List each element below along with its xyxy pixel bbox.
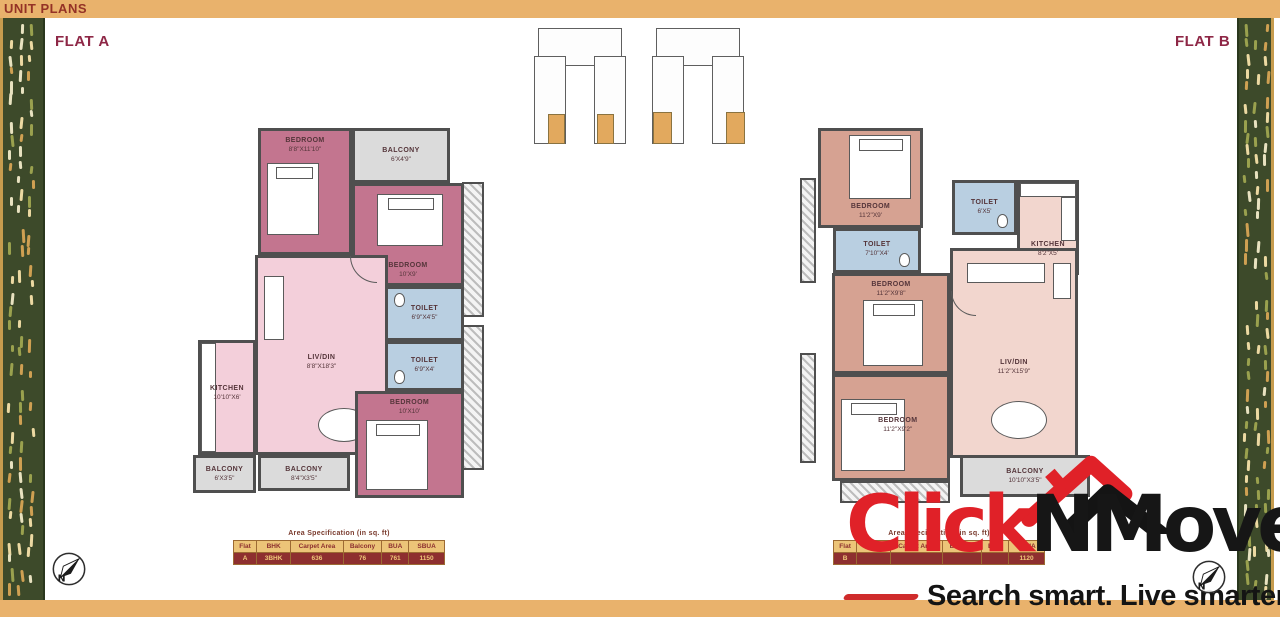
room-size: 6'9"X4'	[388, 366, 461, 374]
col-header: Balcony	[343, 541, 382, 553]
col-header: SBUA	[409, 541, 445, 553]
room-size: 6'X3'5"	[196, 475, 253, 483]
room-size: 7'10"X4'	[836, 250, 918, 258]
side-balcony-hatch	[800, 353, 816, 463]
unit-plans-page: UNIT PLANS FLAT A FLAT B BEDROOM 8'8"X11…	[0, 0, 1280, 617]
room-name: TOILET	[388, 357, 461, 366]
sofa-icon	[967, 263, 1045, 283]
room-balcony-1: BALCONY 6'X4'9"	[352, 128, 450, 183]
room-name: KITCHEN	[1020, 241, 1076, 250]
room-size: 10'X10'	[358, 408, 461, 416]
north-compass-icon: N	[1190, 558, 1228, 596]
col-header: BHK	[257, 541, 291, 553]
room-name: LIV/DIN	[258, 354, 385, 363]
flat-a-area-table: Area Specification (in sq. ft) Flat BHK …	[233, 530, 445, 565]
flat-a-floor-plan: BEDROOM 8'8"X11'10" BALCONY 6'X4'9" BEDR…	[190, 120, 490, 500]
side-balcony-hatch	[800, 178, 816, 283]
bed-icon	[377, 194, 443, 246]
cell-sbua: 1150	[409, 553, 445, 565]
room-name: BEDROOM	[355, 262, 461, 271]
logo-nmove: NMove	[1030, 480, 1280, 570]
highlighted-unit	[726, 112, 745, 144]
bed-icon	[863, 300, 923, 366]
sofa-icon	[264, 276, 284, 340]
dining-table-icon	[991, 401, 1047, 439]
room-size: 6'9"X4'5"	[388, 314, 461, 322]
room-toilet-2: TOILET 7'10"X4'	[833, 228, 921, 273]
room-toilet-1: TOILET 6'9"X4'5"	[385, 286, 464, 341]
room-bedroom-3: BEDROOM 10'X10'	[355, 391, 464, 498]
logo-wordmark: ClickNMove	[846, 486, 1280, 564]
kitchen-counter-icon	[1061, 197, 1076, 241]
room-toilet-2: TOILET 6'9"X4'	[385, 341, 464, 391]
room-size: 11'2"X9'2"	[853, 426, 943, 434]
highlighted-unit	[653, 112, 672, 144]
room-name: BEDROOM	[261, 137, 349, 146]
room-name: BEDROOM	[358, 399, 461, 408]
page-title: UNIT PLANS	[0, 0, 1280, 18]
room-name: LIV/DIN	[953, 359, 1075, 368]
room-size: 10'10"X6'	[201, 394, 253, 402]
room-name: BALCONY	[196, 466, 253, 475]
highlighted-unit	[597, 114, 614, 144]
room-size: 6'X4'9"	[355, 156, 447, 164]
key-plan-flat-b	[652, 28, 744, 146]
room-name: BEDROOM	[821, 203, 920, 212]
room-kitchen: KITCHEN 10'10"X6'	[198, 340, 256, 455]
bed-icon	[849, 135, 911, 199]
room-name: BEDROOM	[835, 281, 947, 290]
cell-bua: 761	[382, 553, 409, 565]
logo-click: Click	[846, 480, 1030, 570]
col-header: BUA	[382, 541, 409, 553]
cell-balcony: 76	[343, 553, 382, 565]
north-compass-icon: N	[50, 550, 88, 588]
cell-flat: A	[234, 553, 257, 565]
col-header: Flat	[234, 541, 257, 553]
room-name: TOILET	[955, 199, 1014, 208]
key-plan-flat-a	[534, 28, 626, 146]
room-living-dining: LIV/DIN 11'2"X15'9"	[950, 248, 1078, 458]
svg-text:N: N	[58, 573, 66, 584]
room-toilet-1: TOILET 6'X5'	[952, 180, 1017, 235]
room-size: 8'4"X3'5"	[261, 475, 347, 483]
room-size: 8'8"X18'3"	[258, 363, 385, 371]
flat-a-label: FLAT A	[55, 33, 110, 50]
room-name: BALCONY	[261, 466, 347, 475]
room-name: BALCONY	[355, 147, 447, 156]
room-name: TOILET	[836, 241, 918, 250]
room-name: BEDROOM	[853, 417, 943, 426]
kitchen-counter-icon	[1020, 183, 1076, 197]
room-size: 8'8"X11'10"	[261, 146, 349, 154]
duct-shaft	[462, 182, 484, 317]
flat-b-label: FLAT B	[1175, 33, 1230, 50]
room-bedroom-1: BEDROOM 11'2"X9'	[818, 128, 923, 228]
toilet-icon	[997, 214, 1008, 228]
red-dash-icon	[843, 594, 920, 600]
room-size: 11'2"X9'8"	[835, 290, 947, 298]
room-balcony-3: BALCONY 8'4"X3'5"	[258, 455, 350, 491]
duct-shaft	[462, 325, 484, 470]
room-size: 6'X5'	[955, 208, 1014, 216]
room-size: 11'2"X15'9"	[953, 368, 1075, 376]
room-balcony-2: BALCONY 6'X3'5"	[193, 455, 256, 493]
highlighted-unit	[548, 114, 565, 144]
room-bedroom-1: BEDROOM 8'8"X11'10"	[258, 128, 352, 255]
table-title: Area Specification (in sq. ft)	[233, 530, 445, 537]
svg-text:N: N	[1198, 581, 1206, 592]
sofa-icon	[1053, 263, 1071, 299]
room-name: TOILET	[388, 305, 461, 314]
bed-icon	[366, 420, 428, 490]
room-size: 8'2"X5'	[1020, 250, 1076, 258]
room-size: 11'2"X9'	[821, 212, 920, 220]
bed-icon	[267, 163, 319, 235]
col-header: Carpet Area	[291, 541, 344, 553]
cell-bhk: 3BHK	[257, 553, 291, 565]
cell-carpet-area: 636	[291, 553, 344, 565]
room-name: KITCHEN	[201, 385, 253, 394]
room-bedroom-2: BEDROOM 11'2"X9'8"	[832, 273, 950, 374]
room-bedroom-2: BEDROOM 10'X9'	[352, 183, 464, 286]
door-arc	[951, 291, 976, 316]
room-size: 10'X9'	[355, 271, 461, 279]
title-bar: UNIT PLANS	[0, 0, 1280, 18]
left-decorative-border	[0, 18, 45, 600]
